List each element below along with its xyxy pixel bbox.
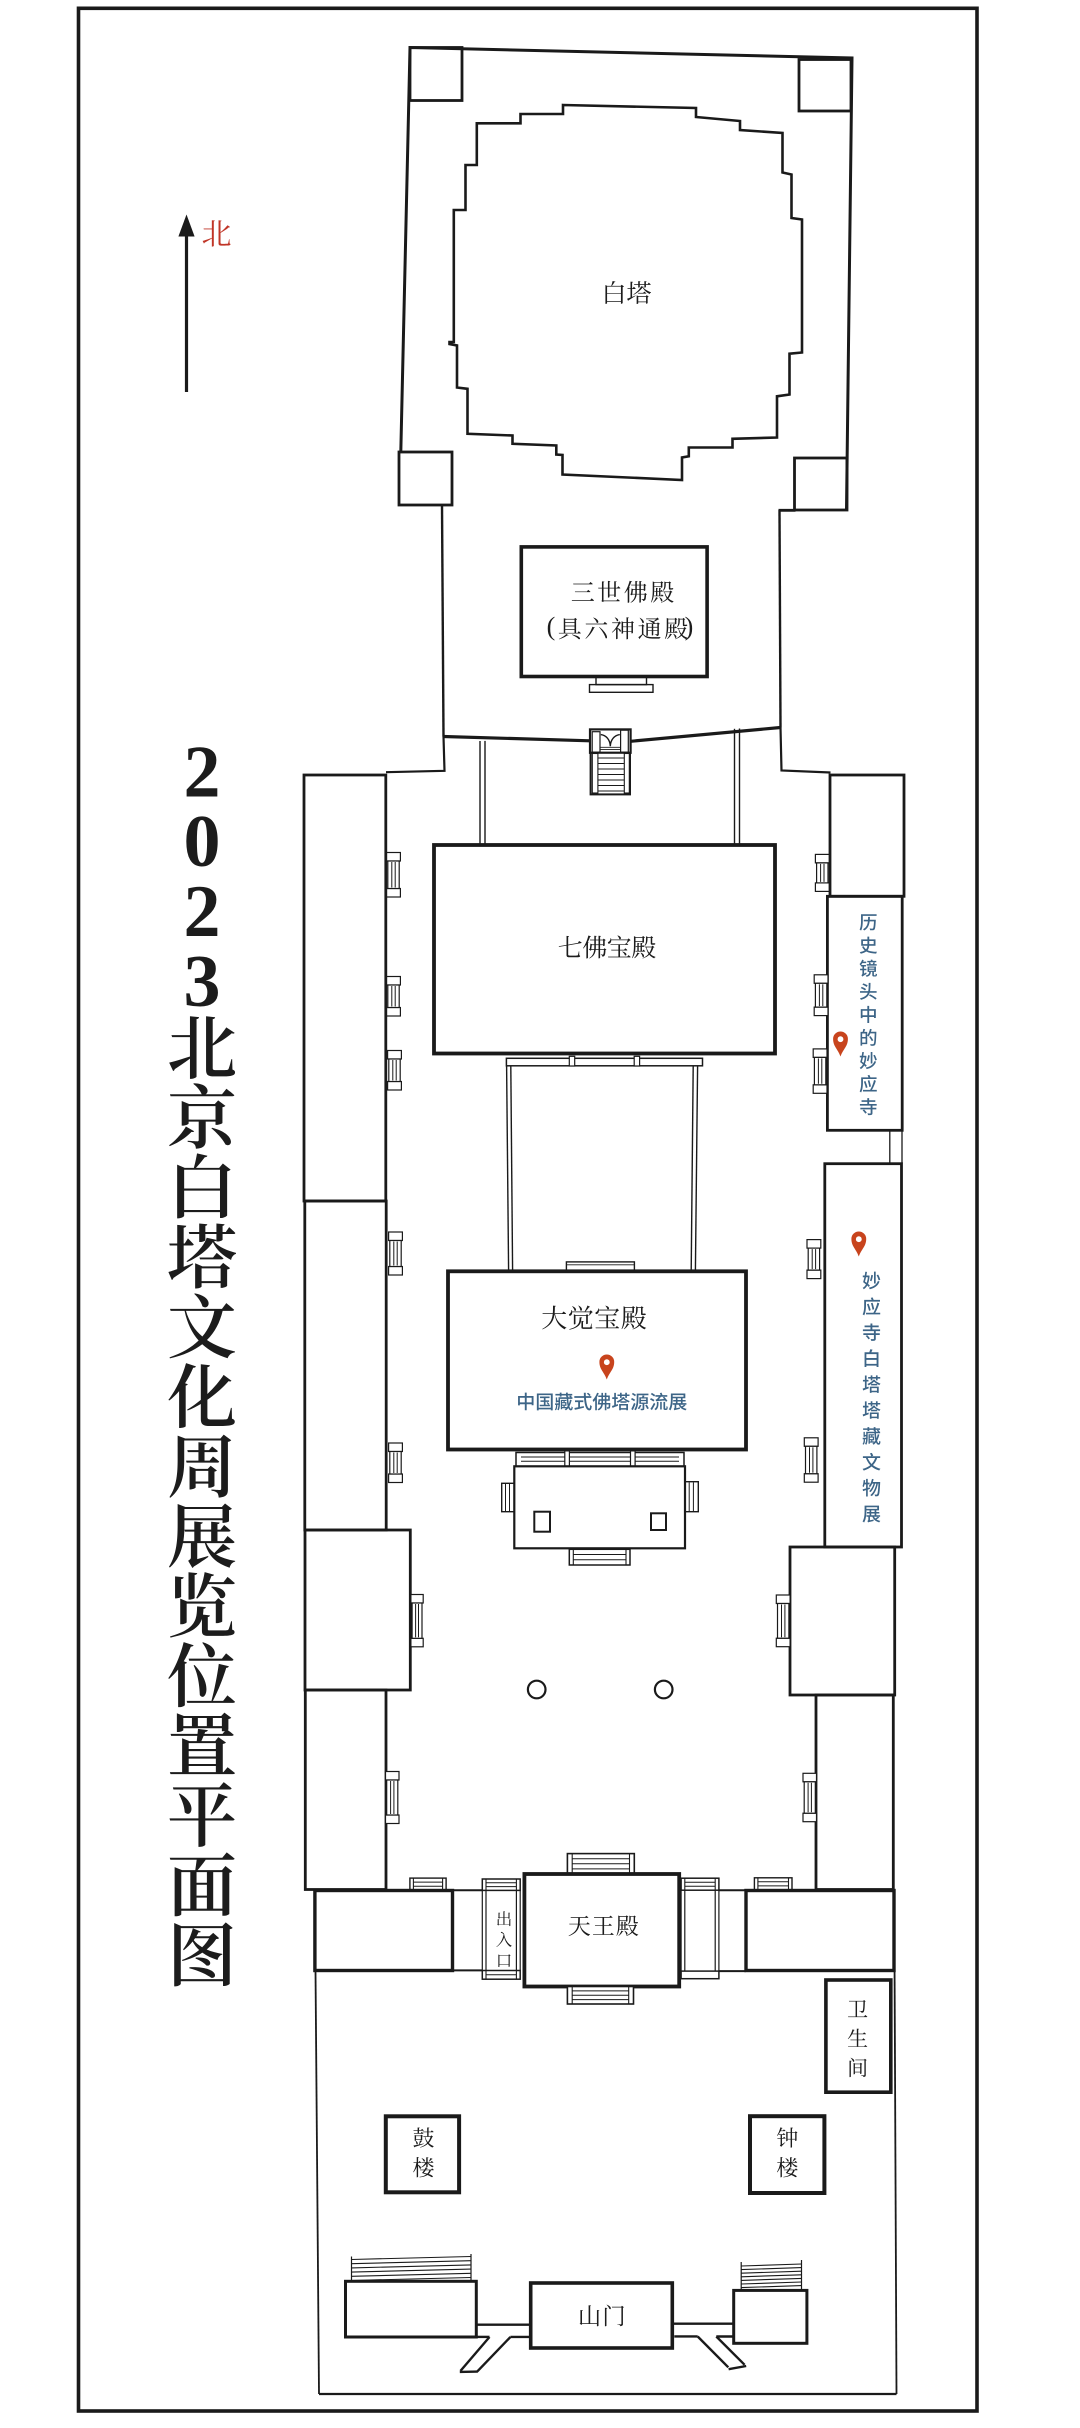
svg-text:(: ( (547, 612, 556, 641)
svg-text:3: 3 (184, 941, 221, 1023)
svg-text:): ) (685, 612, 694, 641)
